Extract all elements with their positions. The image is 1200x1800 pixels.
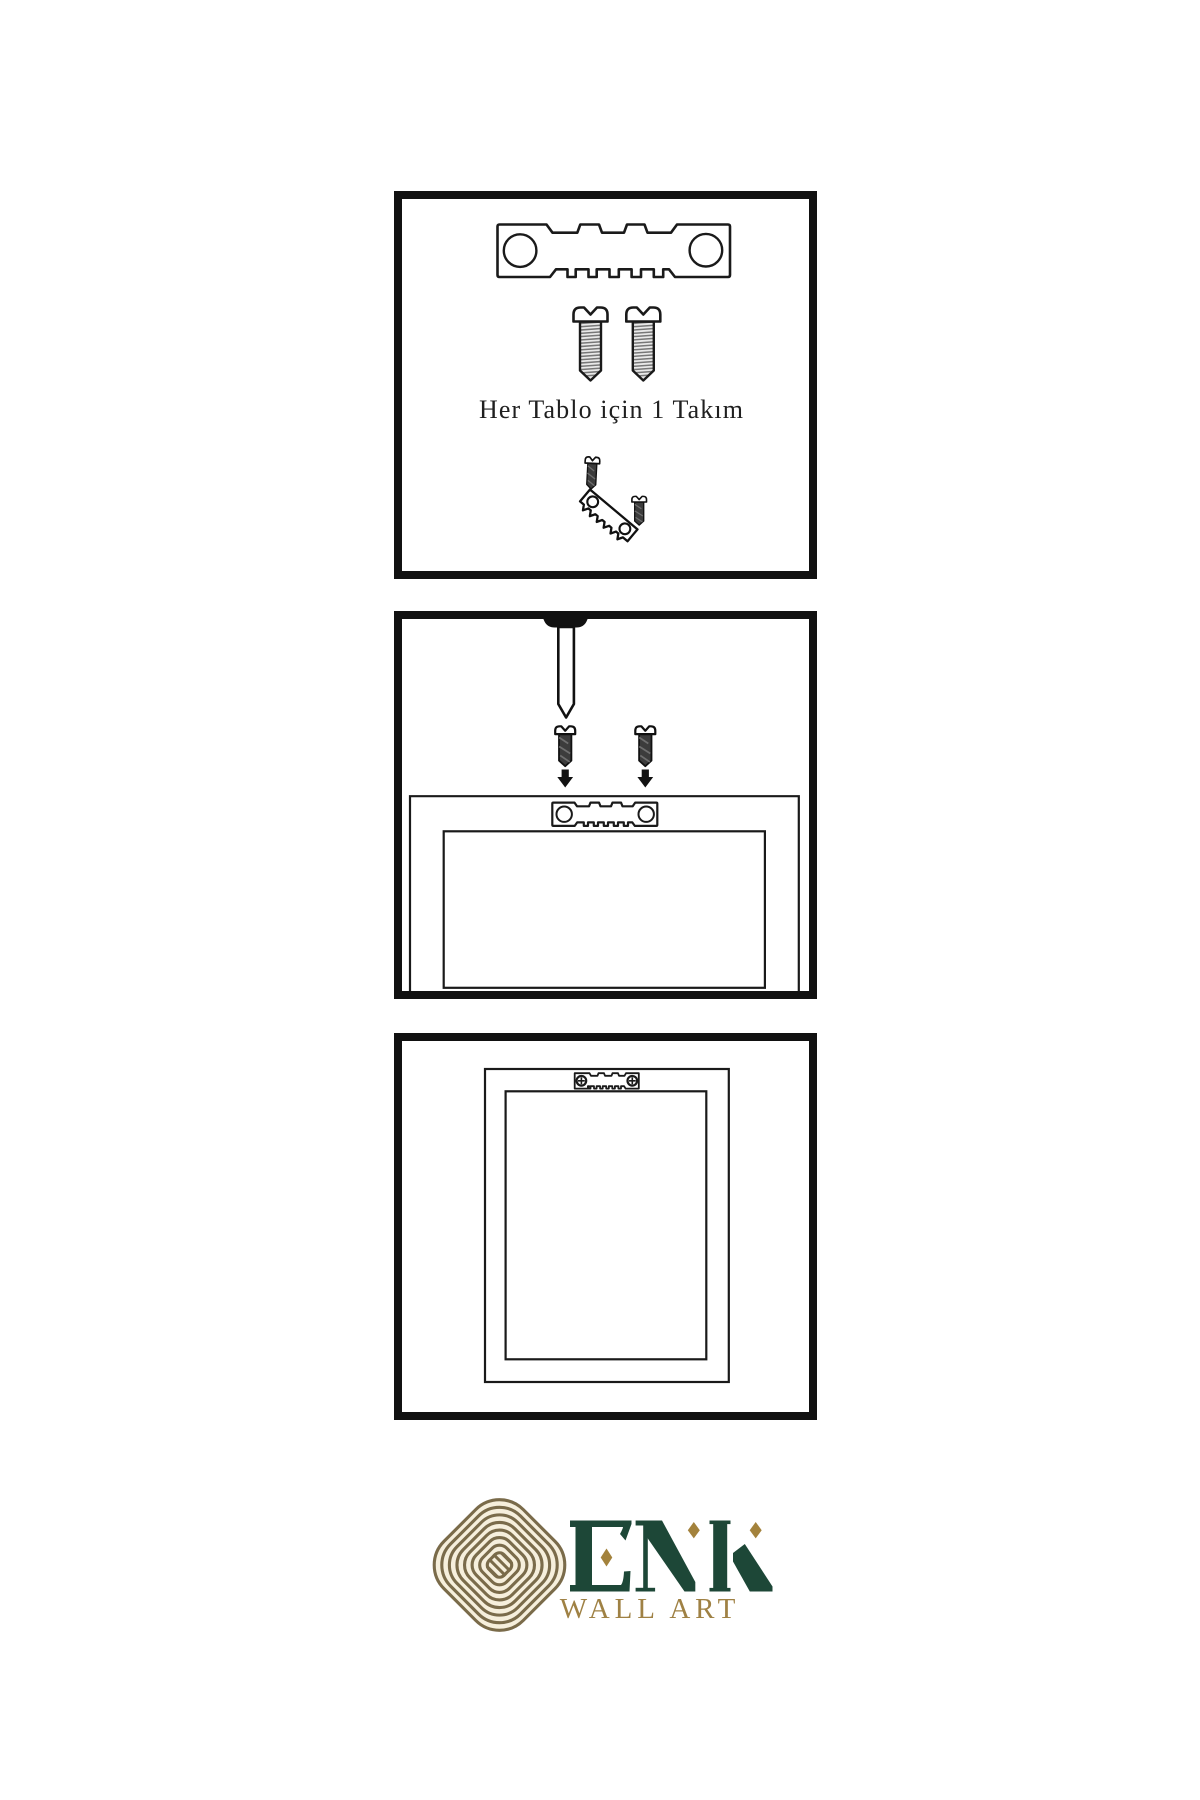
svg-text:Her Tablo için 1 Takım: Her Tablo için 1 Takım bbox=[479, 395, 744, 424]
svg-text:WALL ART: WALL ART bbox=[560, 1593, 741, 1625]
